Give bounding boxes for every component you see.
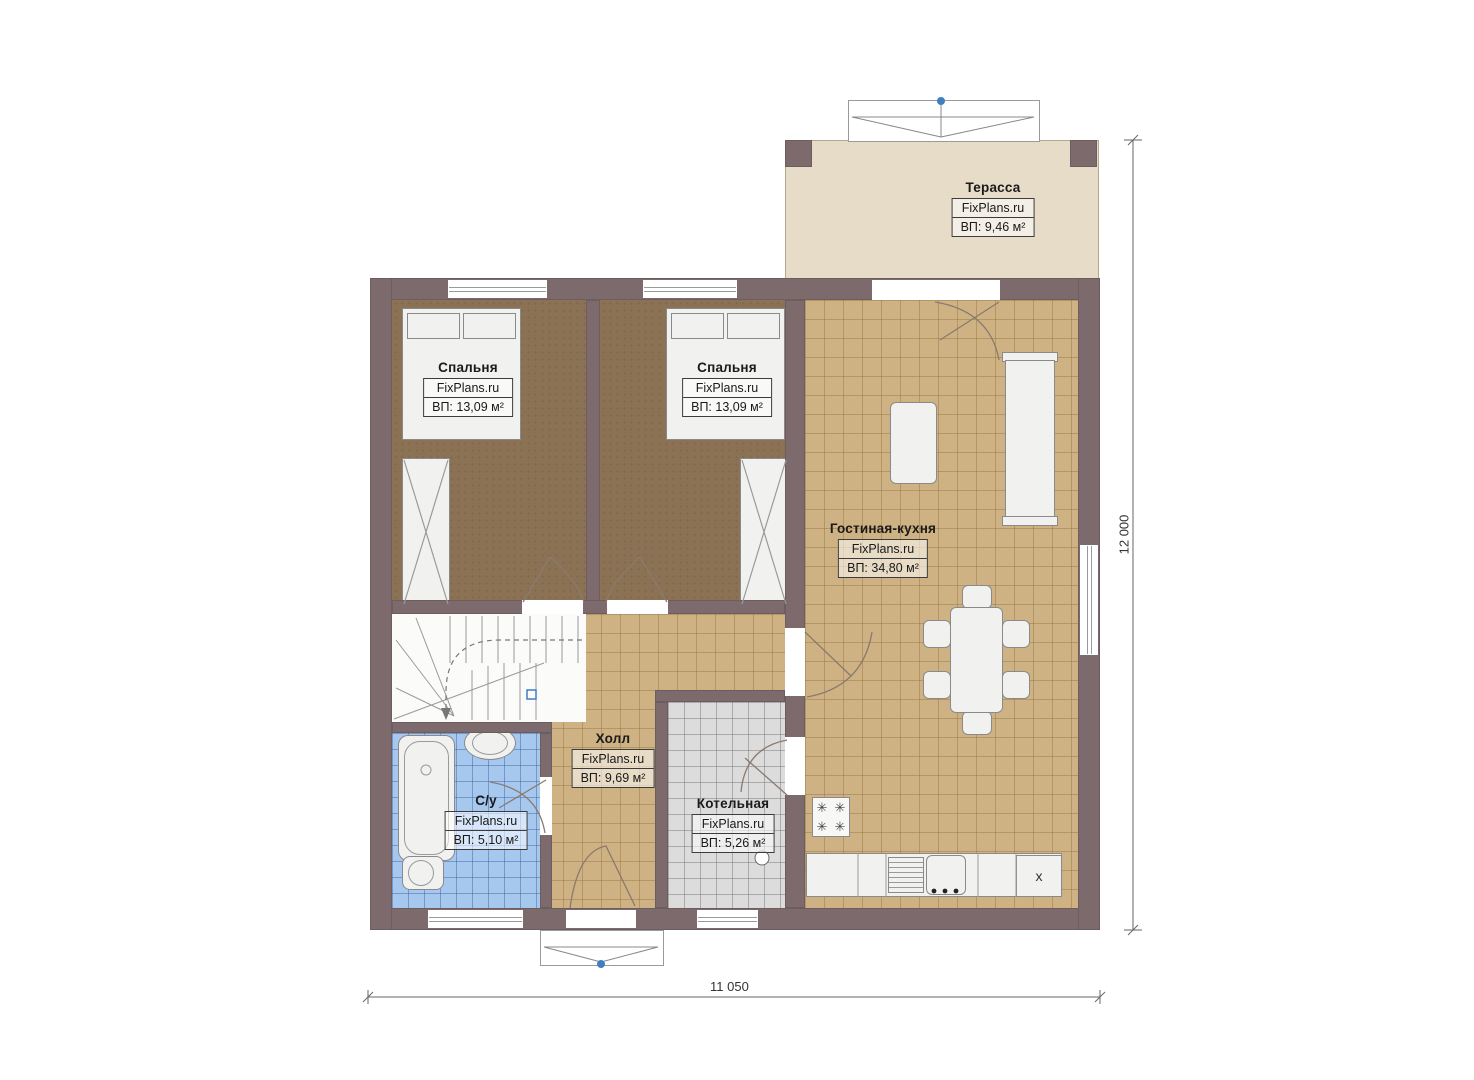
room-info-box: FixPlans.ru ВП: 5,10 м² xyxy=(445,811,528,850)
room-area: ВП: 13,09 м² xyxy=(424,398,512,416)
hall-living-opening xyxy=(785,628,805,696)
pillow xyxy=(407,313,460,339)
room-info-box: FixPlans.ru ВП: 9,69 м² xyxy=(572,749,655,788)
coffee-table xyxy=(890,402,937,484)
bedroom2-door-opening xyxy=(607,600,668,614)
room-name: Холл xyxy=(572,731,655,746)
terrace-door-opening xyxy=(872,280,1000,300)
room-info-box: FixPlans.ru ВП: 5,26 м² xyxy=(692,814,775,853)
room-label-bedroom2: Спальня FixPlans.ru ВП: 13,09 м² xyxy=(682,360,772,417)
room-name: С/у xyxy=(445,793,528,808)
pillow xyxy=(671,313,724,339)
entrance-door-opening xyxy=(566,910,636,928)
room-area: ВП: 9,46 м² xyxy=(953,218,1034,236)
room-info-box: FixPlans.ru ВП: 13,09 м² xyxy=(423,378,513,417)
room-brand: FixPlans.ru xyxy=(573,750,654,769)
window xyxy=(1080,545,1098,655)
chair xyxy=(962,585,992,609)
room-name: Гостиная-кухня xyxy=(830,521,936,536)
wall-bedrooms-bottom xyxy=(392,600,785,614)
stove: ✳ ✳ ✳ ✳ xyxy=(812,797,850,837)
window xyxy=(448,280,547,298)
room-name: Спальня xyxy=(682,360,772,375)
room-label-bathroom: С/у FixPlans.ru ВП: 5,10 м² xyxy=(445,793,528,850)
room-area: ВП: 9,69 м² xyxy=(573,769,654,787)
sofa xyxy=(1005,360,1055,518)
sofa-armrest xyxy=(1002,516,1058,526)
bath-sink-bowl xyxy=(472,731,508,755)
chair xyxy=(1002,671,1030,699)
room-brand: FixPlans.ru xyxy=(446,812,527,831)
bathroom-door-opening xyxy=(540,777,552,835)
room-area: ВП: 5,26 м² xyxy=(693,834,774,852)
burner-icon: ✳ xyxy=(817,801,828,814)
entrance-porch xyxy=(540,930,664,966)
wardrobe xyxy=(402,458,450,606)
chair xyxy=(923,620,951,648)
room-area: ВП: 13,09 м² xyxy=(683,398,771,416)
bedroom1-door-opening xyxy=(522,600,583,614)
fridge-cabinet: x xyxy=(1016,855,1062,897)
burner-icon: ✳ xyxy=(835,820,846,833)
room-info-box: FixPlans.ru ВП: 34,80 м² xyxy=(838,539,928,578)
wall-left xyxy=(370,278,392,930)
room-label-living: Гостиная-кухня FixPlans.ru ВП: 34,80 м² xyxy=(830,521,936,578)
chair xyxy=(1002,620,1030,648)
burner-icon: ✳ xyxy=(835,801,846,814)
window xyxy=(643,280,737,298)
chair xyxy=(923,671,951,699)
room-brand: FixPlans.ru xyxy=(839,540,927,559)
burner-icon: ✳ xyxy=(817,820,828,833)
dimension-width-label: 11 050 xyxy=(710,979,749,994)
fridge-mark: x xyxy=(1036,868,1043,884)
window xyxy=(428,910,523,928)
dimension-height-label: 12 000 xyxy=(1116,515,1131,555)
room-area: ВП: 34,80 м² xyxy=(839,559,927,577)
pillow xyxy=(727,313,780,339)
room-label-hall: Холл FixPlans.ru ВП: 9,69 м² xyxy=(572,731,655,788)
staircase-area xyxy=(392,614,586,722)
chair xyxy=(962,711,992,735)
bathtub-inner xyxy=(404,741,449,855)
room-info-box: FixPlans.ru ВП: 13,09 м² xyxy=(682,378,772,417)
room-brand: FixPlans.ru xyxy=(424,379,512,398)
terrace-post xyxy=(785,140,812,167)
room-brand: FixPlans.ru xyxy=(693,815,774,834)
room-brand: FixPlans.ru xyxy=(953,199,1034,218)
terrace-steps xyxy=(848,100,1040,142)
dining-table xyxy=(950,607,1003,713)
room-label-bedroom1: Спальня FixPlans.ru ВП: 13,09 м² xyxy=(423,360,513,417)
room-name: Терасса xyxy=(952,180,1035,195)
room-name: Котельная xyxy=(692,796,775,811)
pillow xyxy=(463,313,516,339)
room-label-boiler: Котельная FixPlans.ru ВП: 5,26 м² xyxy=(692,796,775,853)
window xyxy=(697,910,758,928)
room-label-terrace: Терасса FixPlans.ru ВП: 9,46 м² xyxy=(952,180,1035,237)
room-name: Спальня xyxy=(423,360,513,375)
room-brand: FixPlans.ru xyxy=(683,379,771,398)
wall-bathroom-top xyxy=(392,722,552,733)
terrace-post xyxy=(1070,140,1097,167)
wall-boiler-top xyxy=(655,690,785,702)
terrace-area xyxy=(785,140,1099,280)
kitchen-sink xyxy=(926,855,966,895)
drainer xyxy=(888,857,924,893)
boiler-door-opening xyxy=(785,737,805,795)
wall-bedroom-divider xyxy=(586,300,600,612)
room-area: ВП: 5,10 м² xyxy=(446,831,527,849)
toilet-bowl xyxy=(408,860,434,886)
wall-living-left xyxy=(785,300,805,908)
wardrobe xyxy=(740,458,788,606)
wall-boiler-left xyxy=(655,702,668,908)
room-info-box: FixPlans.ru ВП: 9,46 м² xyxy=(952,198,1035,237)
floor-plan: x ✳ ✳ ✳ ✳ xyxy=(0,0,1474,1080)
